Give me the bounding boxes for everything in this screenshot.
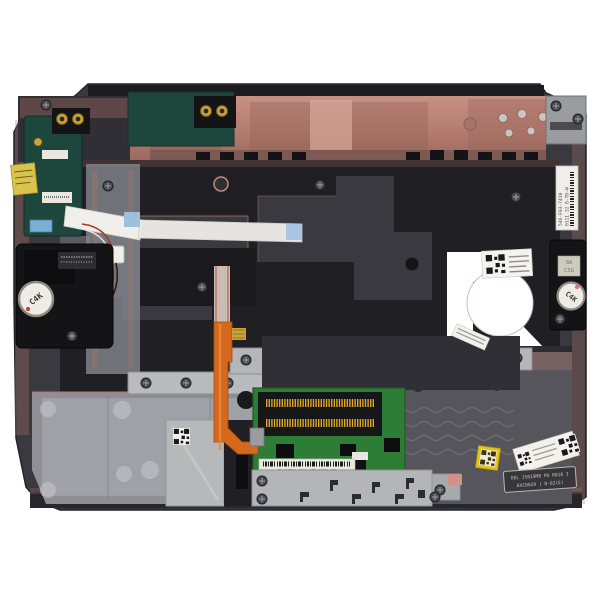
yellow-board-sticker	[11, 163, 38, 195]
top-right-hinge	[546, 96, 586, 144]
photo-canvas: C4K	[0, 0, 600, 600]
copper-light-strip	[310, 100, 352, 150]
screw-icon	[573, 114, 583, 124]
service-sticker-qr	[481, 249, 532, 279]
board-label	[42, 150, 68, 159]
round-sticker-c4k-right: C4K	[558, 283, 585, 310]
board-to-board-connector	[258, 392, 382, 436]
side-label-line1: 546-F03-7419	[558, 193, 564, 226]
engraved-label: DEL JS019M0 PD R018 I KXCB029 | B-02(E)	[503, 467, 576, 493]
screw-icon	[67, 331, 77, 341]
ic-chip	[276, 444, 294, 458]
yellow-qr-sticker	[476, 446, 501, 471]
left-speaker: C4K	[16, 244, 113, 348]
badge-line2: C5G	[564, 268, 574, 274]
vertical-connector	[236, 455, 248, 489]
ribbon-blue-tip	[286, 224, 302, 240]
screw-icon	[551, 101, 561, 111]
qr-sticker-icon	[173, 428, 190, 445]
blue-ffc-connector	[30, 220, 52, 232]
audio-jack-icon	[217, 106, 228, 117]
rubber-foot	[406, 258, 419, 271]
audio-jack-icon	[57, 114, 68, 125]
badge-sticker: 8A C5G	[558, 256, 580, 276]
gold-screw-icon	[34, 138, 42, 146]
flex-clip	[250, 428, 264, 446]
side-barcode-label: 546-F03-7419 0111 32 B-TD-W	[556, 166, 578, 230]
audio-jack-icon	[73, 114, 84, 125]
ic-chip	[384, 438, 400, 452]
screw-icon	[555, 314, 565, 324]
pink-tab	[448, 474, 462, 485]
audio-jack-icon	[201, 106, 212, 117]
round-sticker-c4k-left: C4K	[19, 282, 53, 316]
center-left-module	[140, 248, 256, 306]
badge-line1: 8A	[566, 260, 573, 266]
touchpad-bracket	[252, 470, 462, 506]
screw-boss-ring	[214, 177, 228, 191]
ribbon-blue-tip	[124, 212, 140, 227]
right-speaker: 8A C5G C4K	[550, 240, 586, 330]
palmrest-photo: C4K	[0, 0, 600, 600]
side-label-line2: 0111 32 B-TD-W	[565, 187, 571, 226]
